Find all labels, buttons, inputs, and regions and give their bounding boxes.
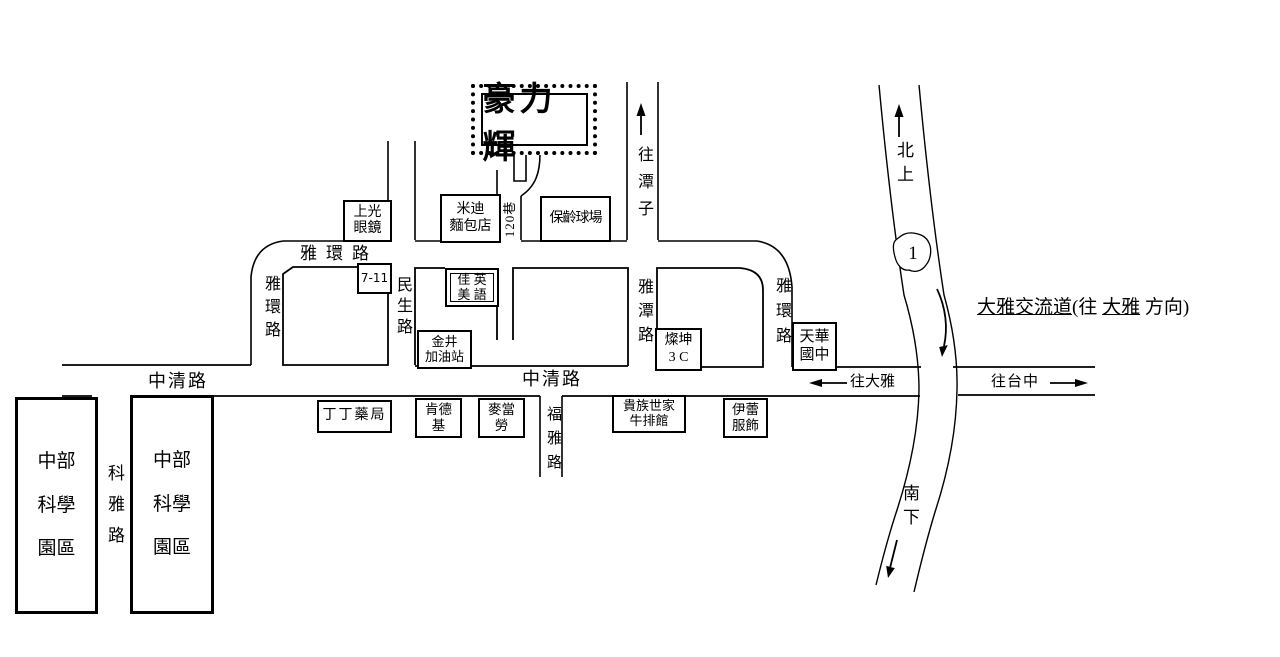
landmark-jiamei-english: 佳 英 美 語: [445, 268, 499, 307]
landmark-7-11: 7-11: [357, 263, 392, 294]
landmark-science-park-west: 中部 科學 園區: [15, 397, 98, 614]
lane-120-label: 120巷: [499, 193, 515, 245]
direction-to-daya: 往大雅: [850, 374, 895, 392]
road-label-fuya: 福雅路: [543, 406, 564, 478]
road-label-yatan: 雅潭路: [631, 278, 655, 350]
interchange-name: 大雅交流道: [977, 297, 1072, 318]
interchange-note: 大雅交流道(往 大雅 方向): [977, 297, 1189, 319]
destination-box: 豪力輝: [471, 84, 597, 155]
landmark-tsannkuen-3c: 燦坤 3 C: [655, 328, 702, 371]
interchange-pre: (往: [1072, 297, 1102, 318]
interchange-daya: 大雅: [1102, 297, 1140, 318]
landmark-science-park-east: 中部 科學 園區: [130, 395, 214, 614]
direction-southbound: 南下: [897, 484, 922, 532]
landmark-noble-steakhouse: 貴族世家 牛排館: [612, 395, 686, 433]
road-label-keya: 科雅路: [102, 464, 127, 557]
direction-arrows: [637, 103, 1089, 578]
road-label-zhongqing-east: 中清路: [522, 369, 582, 390]
landmark-mcdonalds: 麥當 勞: [478, 398, 525, 438]
landmark-tianhua-junior-high: 天華 國中: [792, 322, 837, 371]
landmark-bowling-alley: 保齡球場: [540, 196, 611, 242]
landmark-dingding-pharmacy: 丁丁藥局: [317, 400, 392, 433]
landmark-yilei-clothing: 伊蕾 服飾: [723, 398, 768, 438]
landmark-jinjing-gas-station: 金井 加油站: [417, 330, 472, 369]
direction-to-tanzi: 往潭子: [631, 146, 655, 227]
direction-northbound: 北上: [891, 141, 916, 189]
landmark-shangguang-glasses: 上光 眼鏡: [343, 200, 392, 242]
landmark-kfc: 肯德 基: [415, 398, 462, 438]
southbound-arrow: [890, 540, 897, 568]
road-label-yahuan-top: 雅環路: [300, 244, 378, 264]
destination-label: 豪力輝: [481, 93, 588, 146]
route-map: 豪力輝 120巷 上光 眼鏡 米迪 麵包店 保齡球場 7-11 佳 英 美 語 …: [0, 0, 1280, 657]
landmark-midi-bakery: 米迪 麵包店: [440, 194, 501, 243]
highway-shield-number: 1: [908, 243, 918, 265]
road-label-yahuan-right: 雅環路: [769, 277, 793, 352]
interchange-post: 方向): [1140, 297, 1189, 318]
road-label-minsheng: 民生路: [390, 276, 414, 339]
road-label-zhongqing-west: 中清路: [148, 371, 208, 392]
direction-to-taichung: 往台中: [991, 374, 1039, 392]
road-label-yahuan-left: 雅環路: [258, 275, 282, 344]
jiamei-english-label: 佳 英 美 語: [450, 273, 494, 302]
